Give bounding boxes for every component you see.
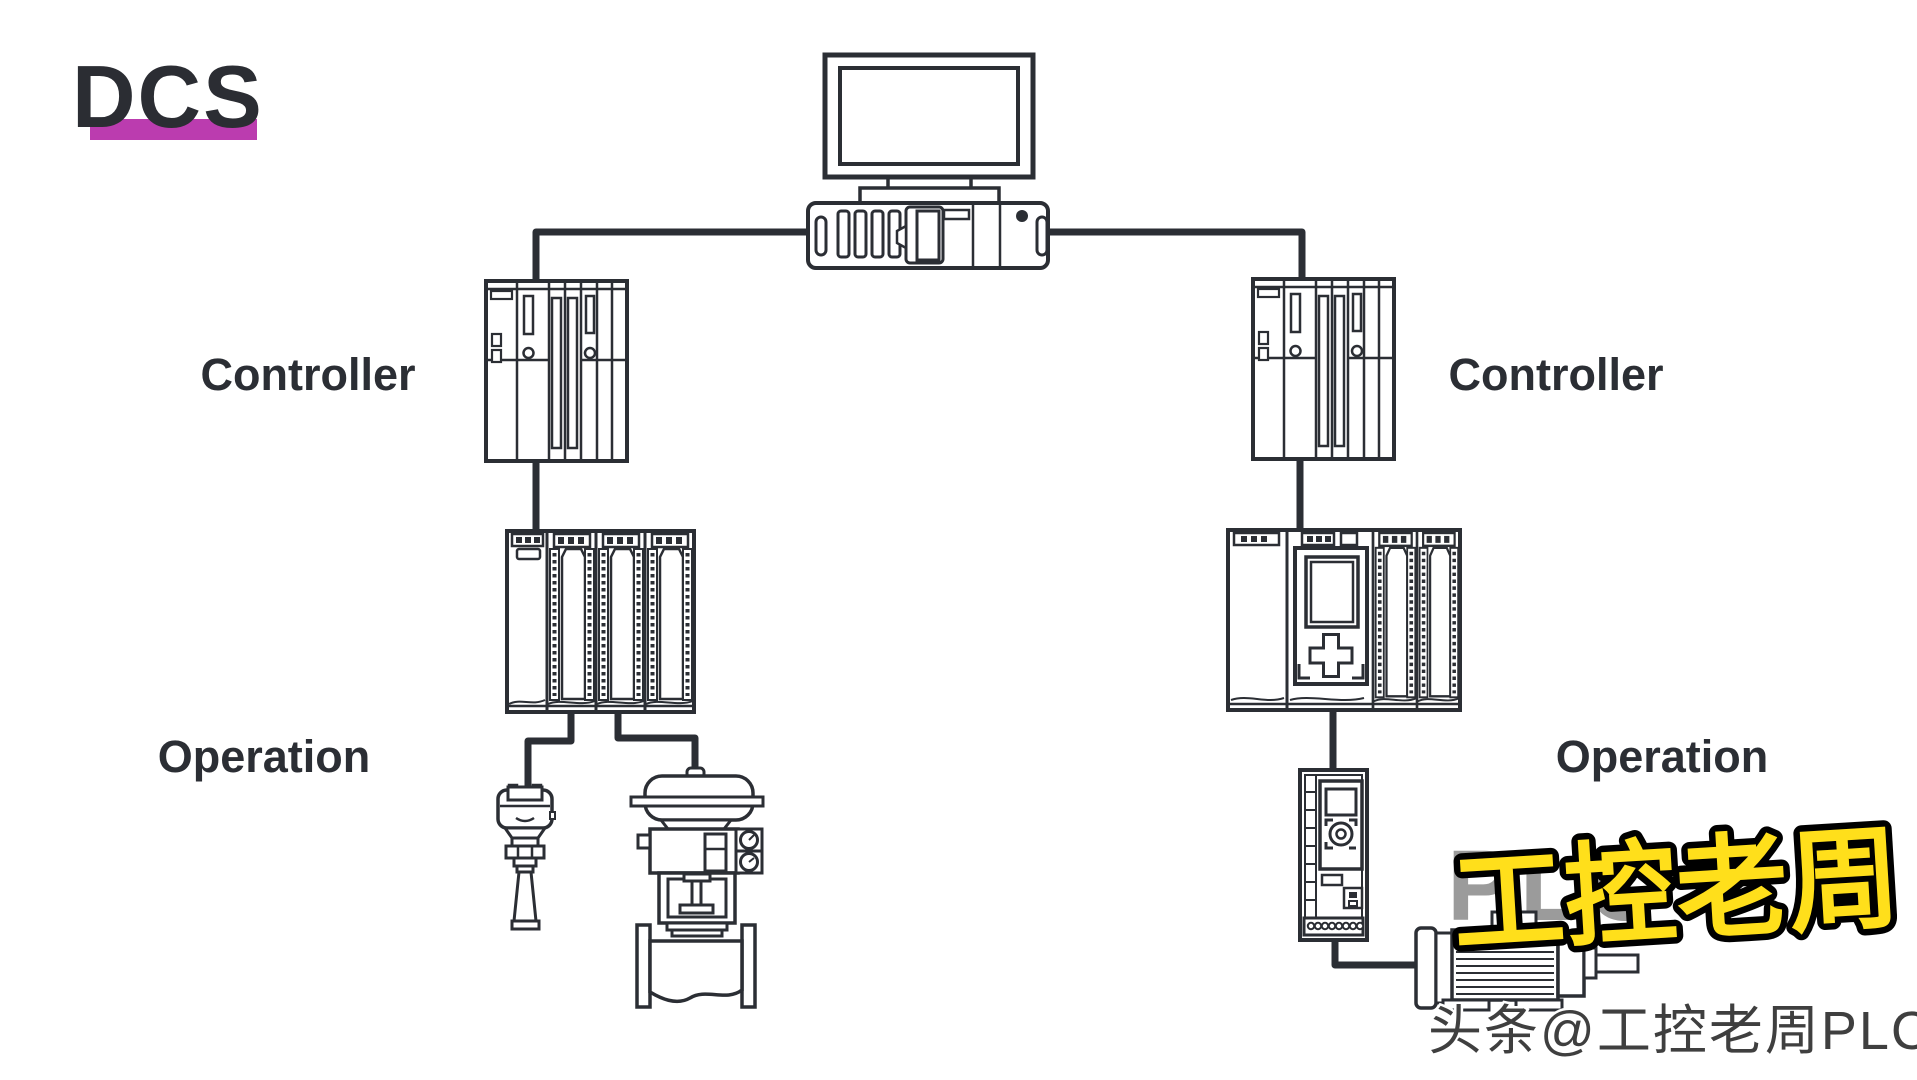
bus-line-server-to-left-controller xyxy=(536,232,808,281)
watermark-footer: 头条@工控老周PLC xyxy=(1428,1001,1917,1061)
io-module xyxy=(645,531,693,712)
transmitter-hex-nut xyxy=(506,846,544,858)
signal-line-io-to-transmitter xyxy=(528,710,571,791)
vfd-drive xyxy=(1300,770,1367,940)
controller-rack-right xyxy=(1253,279,1394,459)
level-transmitter xyxy=(498,785,555,929)
server-power-led xyxy=(1016,210,1028,222)
io-module xyxy=(596,531,644,712)
control-valve xyxy=(631,768,763,1007)
valve-positioner xyxy=(638,829,762,873)
motor-fan-cover xyxy=(1416,928,1436,1008)
dcs-server xyxy=(808,203,1048,268)
dcs-title: DCS xyxy=(72,47,264,146)
vfd-terminals xyxy=(1304,918,1363,935)
bus-line-server-to-right-controller xyxy=(1048,232,1302,281)
server-handle-left xyxy=(816,217,826,255)
diagram-canvas: DCS xyxy=(0,0,1917,1080)
io-module xyxy=(1417,530,1459,709)
controller-rack-left xyxy=(486,281,627,461)
io-module xyxy=(547,531,595,712)
monitor-screen xyxy=(840,68,1018,164)
vfd-screen xyxy=(1326,789,1356,815)
plc-rack-right xyxy=(1228,530,1460,710)
operation-label-right: Operation xyxy=(1556,731,1769,782)
dcs-architecture-diagram: DCS xyxy=(0,0,1917,1080)
workstation-monitor xyxy=(825,55,1033,203)
controller-label-left: Controller xyxy=(200,349,415,400)
valve-yoke xyxy=(659,873,735,923)
page-title: DCS xyxy=(72,47,264,146)
transmitter-horn xyxy=(514,872,536,921)
server-label xyxy=(944,210,969,219)
io-rack-left xyxy=(507,531,694,712)
io-module xyxy=(1373,530,1416,709)
signal-line-io-to-valve xyxy=(618,710,695,770)
monitor-stand xyxy=(860,177,999,203)
watermark-main: 工控老周 xyxy=(1449,815,1904,967)
valve-gauges xyxy=(736,829,762,873)
server-handle-right xyxy=(1037,217,1047,255)
operation-label-left: Operation xyxy=(158,731,371,782)
plc-cpu-module xyxy=(1290,533,1367,700)
controller-label-right: Controller xyxy=(1448,349,1663,400)
